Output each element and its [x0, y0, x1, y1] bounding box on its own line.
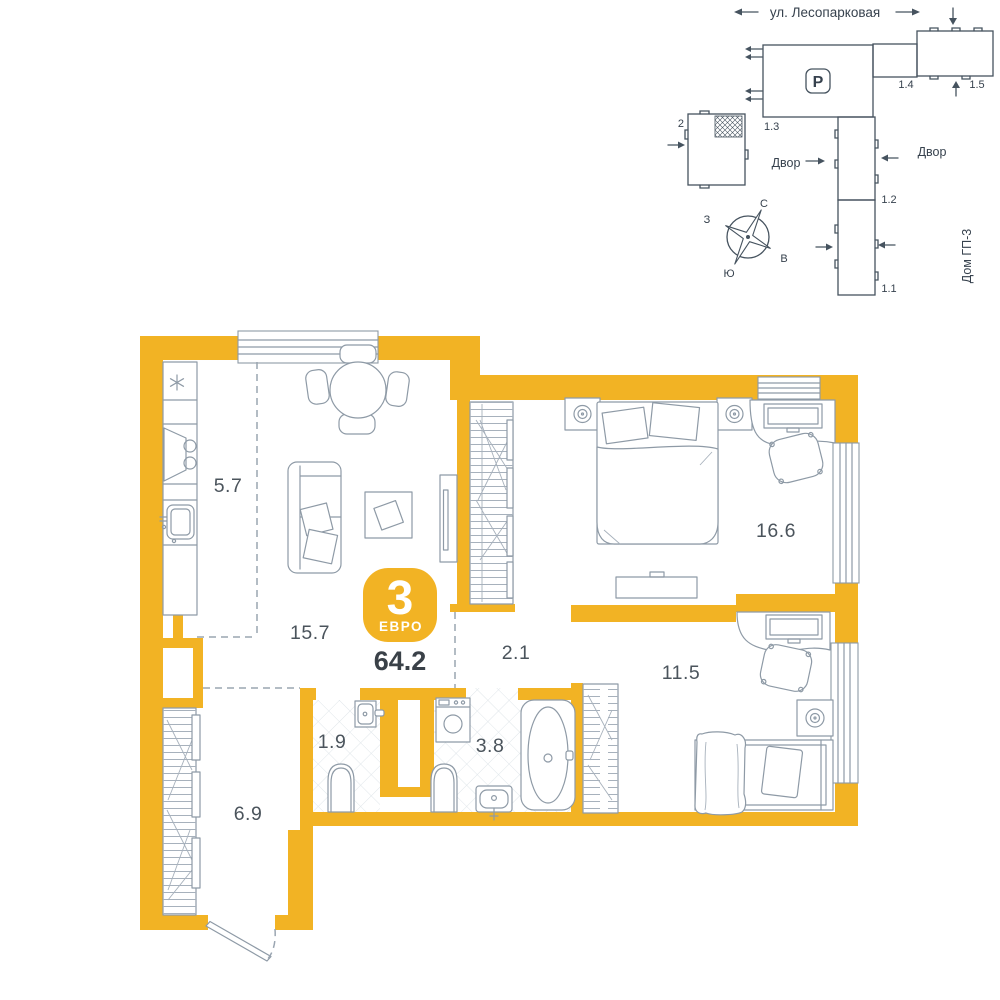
nightstand-lamp-bedroom2: [797, 700, 833, 736]
yard-right-label: Двор: [918, 145, 947, 159]
building-1-4: 1.4: [873, 44, 917, 91]
wardrobe-hallway: [163, 708, 200, 915]
badge-rooms-count: 3: [387, 572, 414, 625]
wc-toilet: [328, 764, 354, 812]
kitchen-fixtures: [160, 362, 197, 615]
buildings-strip: 1.2 1.1: [835, 117, 897, 295]
building-1-4-label: 1.4: [898, 79, 913, 91]
wardrobe-bedroom2: [583, 684, 618, 813]
area-kitchen: 5.7: [214, 475, 243, 497]
entrance-door: [206, 922, 275, 962]
neighbor-house-label: Дом ГП-3: [960, 229, 974, 284]
window-bedroom1-top: [758, 377, 820, 399]
compass-west: З: [704, 214, 711, 226]
tv-stand: [440, 475, 457, 562]
parking-icon: P: [813, 74, 824, 91]
dresser: [616, 572, 697, 598]
area-hallway: 6.9: [234, 803, 263, 825]
bathroom-toilet: [431, 764, 457, 812]
building-2-label: 2: [678, 118, 684, 130]
street-label: ул. Лесопарковая: [770, 5, 880, 20]
compass-icon: С З В Ю: [704, 198, 788, 280]
double-bed: [597, 402, 718, 544]
exit-arrows-left: [745, 46, 762, 102]
building-1-5-label: 1.5: [969, 79, 984, 91]
bathtub: [521, 700, 575, 810]
area-bedroom-second: 11.5: [662, 662, 701, 684]
apartment-badge: 3 ЕВРО 64.2: [363, 568, 437, 676]
shaft-interior: [398, 700, 420, 787]
total-area: 64.2: [374, 646, 427, 676]
bedroom1-furniture: [470, 398, 835, 604]
building-2: 2: [668, 111, 748, 188]
area-wc: 1.9: [318, 731, 347, 753]
site-plan: ул. Лесопарковая P 1.3 1.4: [668, 5, 993, 295]
building-1-1-label: 1.1: [881, 283, 896, 295]
compass-north: С: [760, 198, 768, 210]
wardrobe-bedroom1: [470, 402, 513, 604]
sofa: [288, 462, 341, 573]
nightstand-lamp-right: [717, 398, 752, 430]
area-corridor: 2.1: [502, 642, 531, 664]
single-bed: [695, 732, 833, 815]
building-1-3-label: 1.3: [764, 121, 779, 133]
compass-south: Ю: [723, 268, 734, 280]
nightstand-lamp-left: [565, 398, 600, 430]
compass-east: В: [780, 253, 787, 265]
building-1-2-label: 1.2: [881, 194, 896, 206]
coffee-table: [365, 492, 412, 538]
building-1-5: 1.5: [917, 8, 993, 96]
duct-interior: [163, 648, 193, 698]
window-bedroom1-right: [833, 443, 859, 583]
area-bathroom: 3.8: [476, 735, 505, 757]
badge-layout-type: ЕВРО: [379, 619, 423, 634]
floorplan-canvas: ул. Лесопарковая P 1.3 1.4: [0, 0, 1000, 1000]
living-room-furniture: [288, 345, 457, 573]
area-bedroom-main: 16.6: [756, 520, 796, 542]
floor-plan: 5.7 15.7 16.6 11.5 2.1 1.9 3.8 6.9 3 ЕВР…: [140, 331, 859, 961]
building-1-3: P 1.3: [745, 45, 873, 133]
yard-left-label: Двор: [772, 156, 801, 170]
washing-machine: [436, 698, 470, 742]
window-bedroom2-right: [831, 643, 858, 783]
chair-bedroom2: [758, 642, 814, 693]
area-living-room: 15.7: [290, 622, 330, 644]
bedroom2-furniture: [583, 612, 833, 815]
